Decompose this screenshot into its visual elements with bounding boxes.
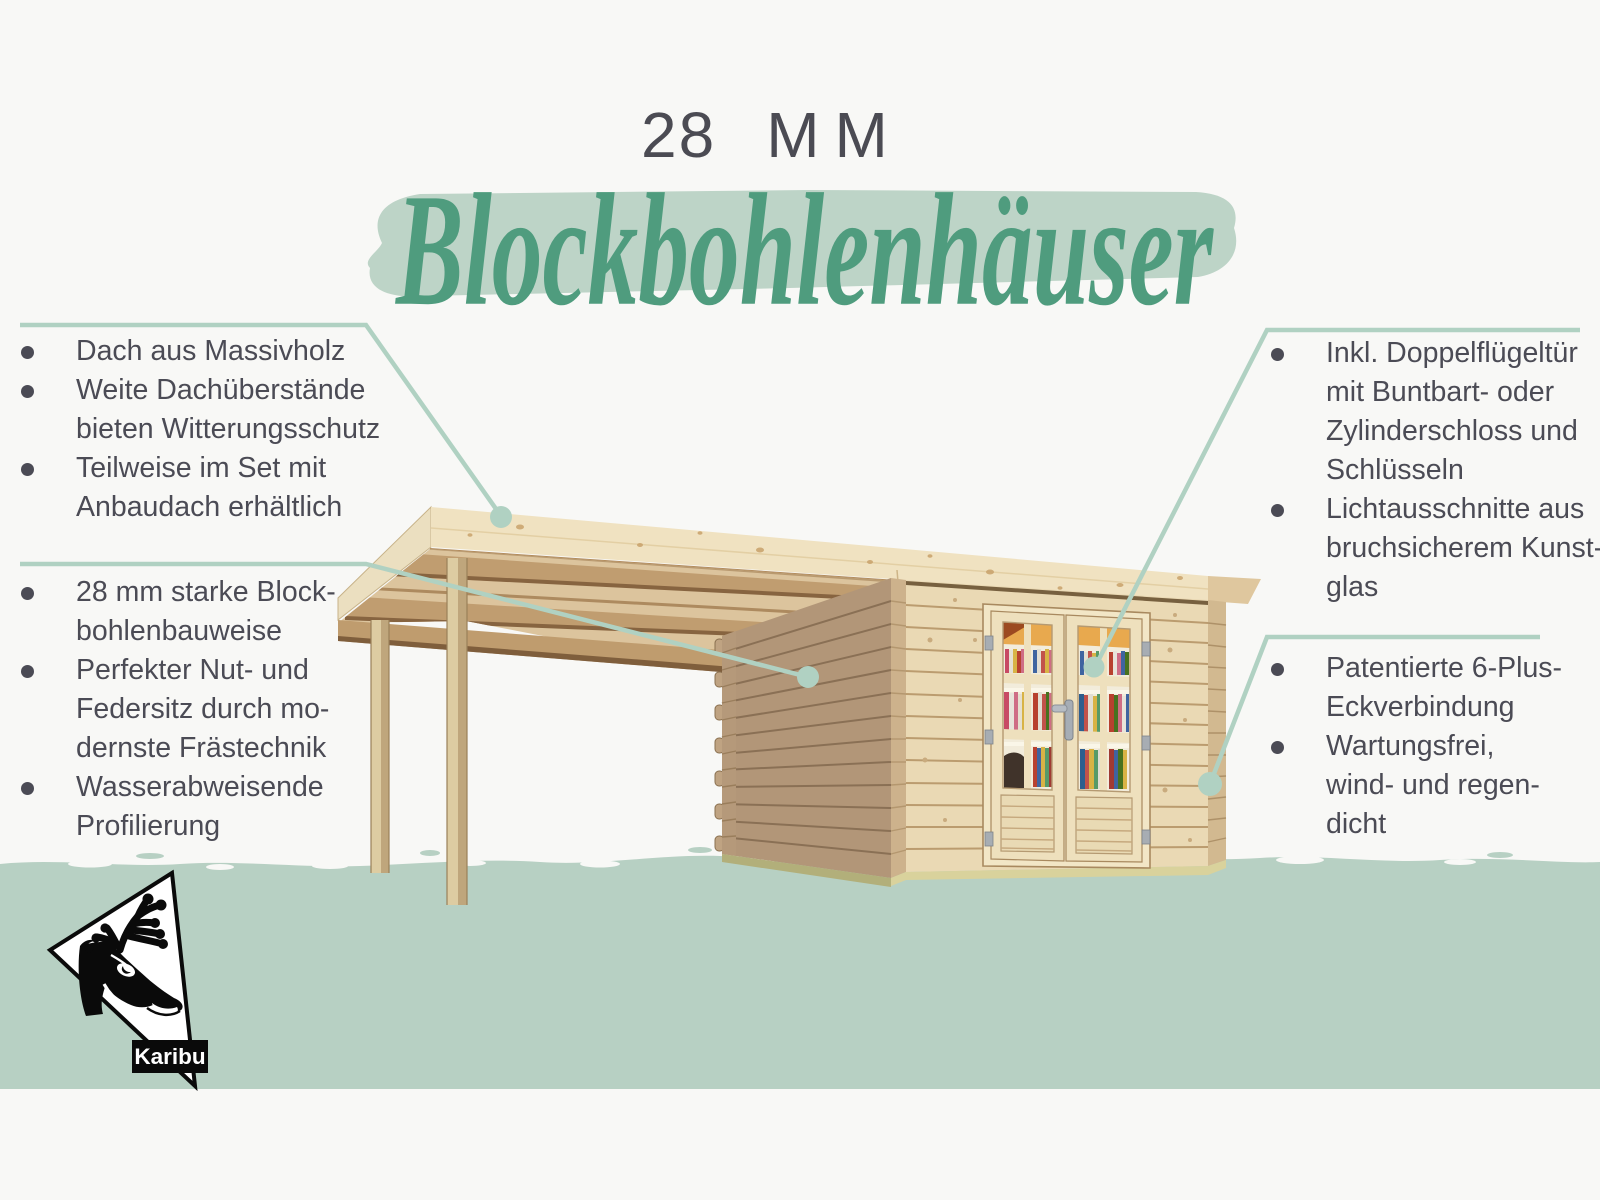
svg-text:Karibu: Karibu	[134, 1044, 205, 1069]
